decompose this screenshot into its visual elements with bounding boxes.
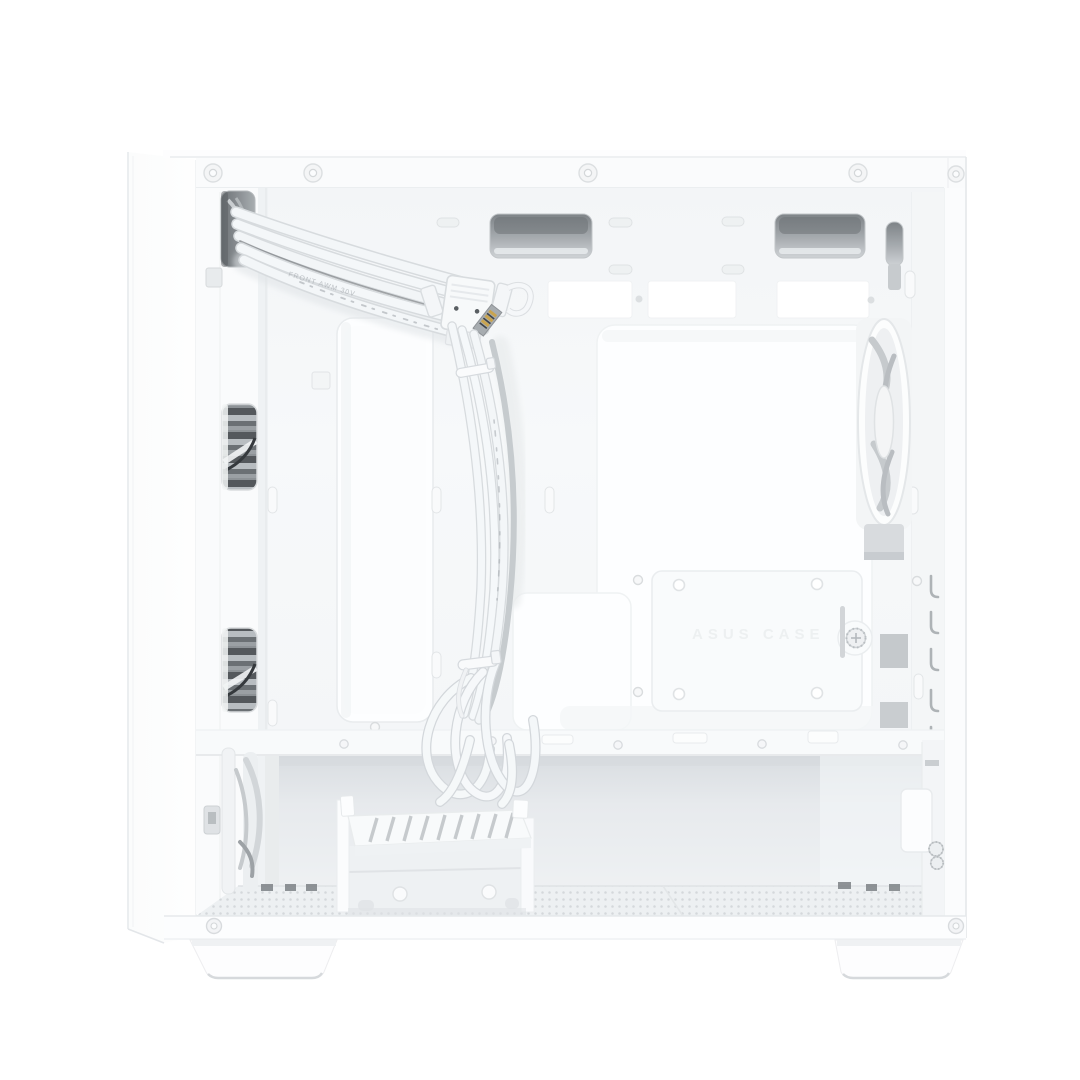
bottom-rail [164,916,966,940]
product-photo-canvas: ASUS CASE [0,0,1080,1080]
pc-case-illustration: ASUS CASE [0,0,1080,1080]
tray-bottom-rail [196,730,944,756]
front-fan-opening-lower [222,628,257,712]
ssd-mount-plate: ASUS CASE [652,571,872,711]
rear-exhaust-fan [856,318,912,560]
front-bezel [128,152,196,943]
tray-label-plates [548,281,875,318]
wall-clip-top [206,268,222,287]
cable-grommet-left [490,214,592,258]
top-rail [163,150,966,193]
right-outer-wall [944,157,966,938]
wall-clip-bottom [204,806,220,834]
vertical-latch-slot [886,222,903,290]
front-wall [196,188,277,914]
cage-top-shelf [348,810,531,856]
front-fan-opening-upper [222,404,257,490]
cable-routing-channel [337,318,433,722]
bottom-chamber [196,740,944,918]
cable-grommet-right [775,214,865,258]
wall-clip-upper [312,372,330,389]
case-foot-left [190,940,337,978]
fan-hub [875,386,894,458]
embossed-case-text: ASUS CASE [692,626,825,643]
thumbscrew [847,629,866,648]
case-foot-right [835,940,963,978]
